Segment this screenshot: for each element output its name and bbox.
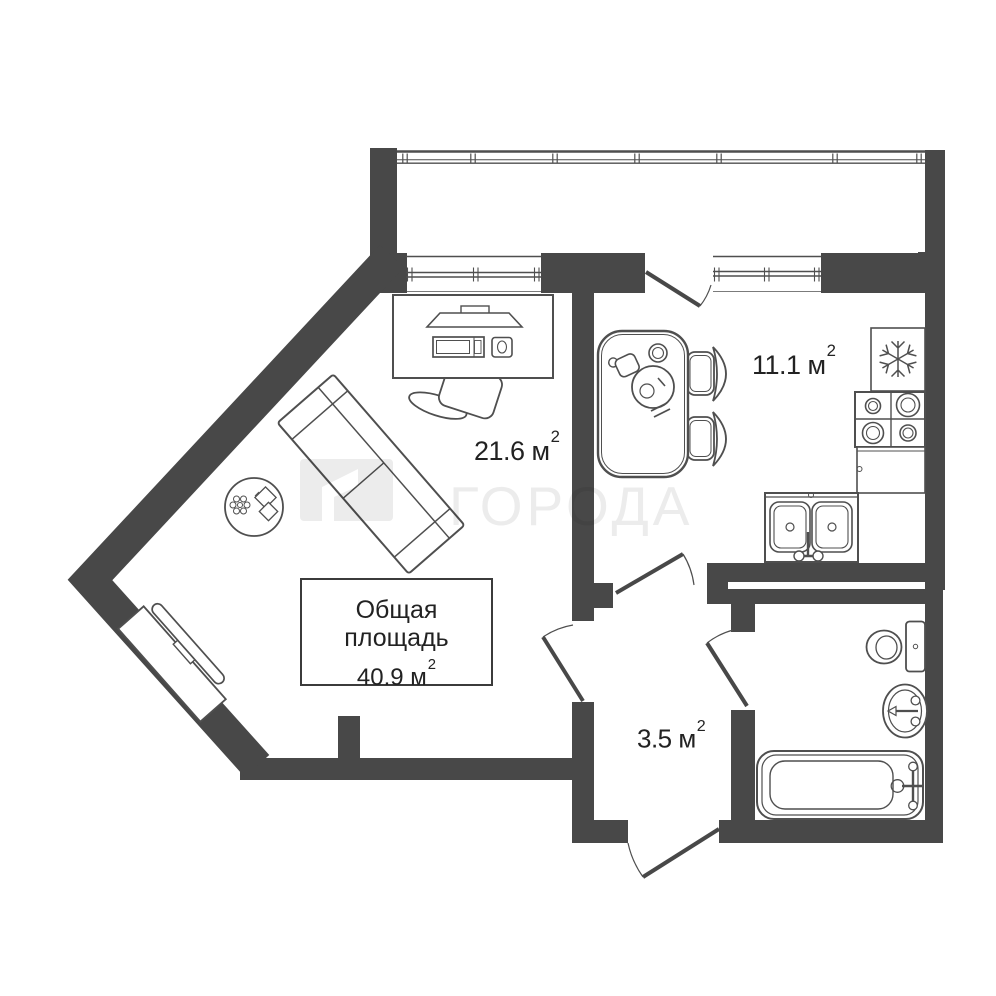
- toilet: [867, 622, 926, 672]
- floor-plan: 21.6 м2 11.1 м2 3.5 м2 Общая площадь 40.…: [0, 0, 996, 996]
- balcony-glazing-window: [397, 152, 925, 164]
- room-label-living: 21.6 м2: [474, 437, 559, 465]
- total-area-value: 40.9 м2: [302, 665, 491, 690]
- total-area-title: Общая площадь: [302, 597, 491, 652]
- tv-stand: [118, 597, 236, 722]
- total-area-box: Общая площадь 40.9 м2: [300, 578, 493, 686]
- bathtub: [757, 751, 924, 819]
- side-table: [225, 478, 283, 536]
- mouse-icon: [492, 338, 512, 358]
- living-room-door: [543, 625, 583, 701]
- dining-chair: [687, 347, 726, 401]
- living-room-window: [406, 257, 541, 292]
- keyboard-icon: [433, 337, 484, 357]
- entrance-door: [628, 829, 719, 877]
- plate-icon: [649, 344, 667, 362]
- desk: [393, 295, 553, 378]
- stove: [855, 392, 925, 447]
- balcony-door: [646, 272, 711, 306]
- kitchen-window: [713, 257, 821, 292]
- room-label-hallway: 3.5 м2: [637, 725, 705, 752]
- washbasin: [883, 685, 927, 738]
- floor-plan-drawing: [0, 0, 996, 996]
- bathroom-door: [707, 630, 747, 706]
- dining-chair: [687, 412, 726, 466]
- kitchen-door: [616, 554, 694, 593]
- room-label-kitchen: 11.1 м2: [752, 351, 835, 379]
- dining-table: [598, 331, 688, 477]
- kitchen-sink: [765, 493, 858, 563]
- big-plate-icon: [632, 366, 674, 408]
- fridge: [871, 328, 925, 391]
- kitchen-counter: [857, 447, 925, 493]
